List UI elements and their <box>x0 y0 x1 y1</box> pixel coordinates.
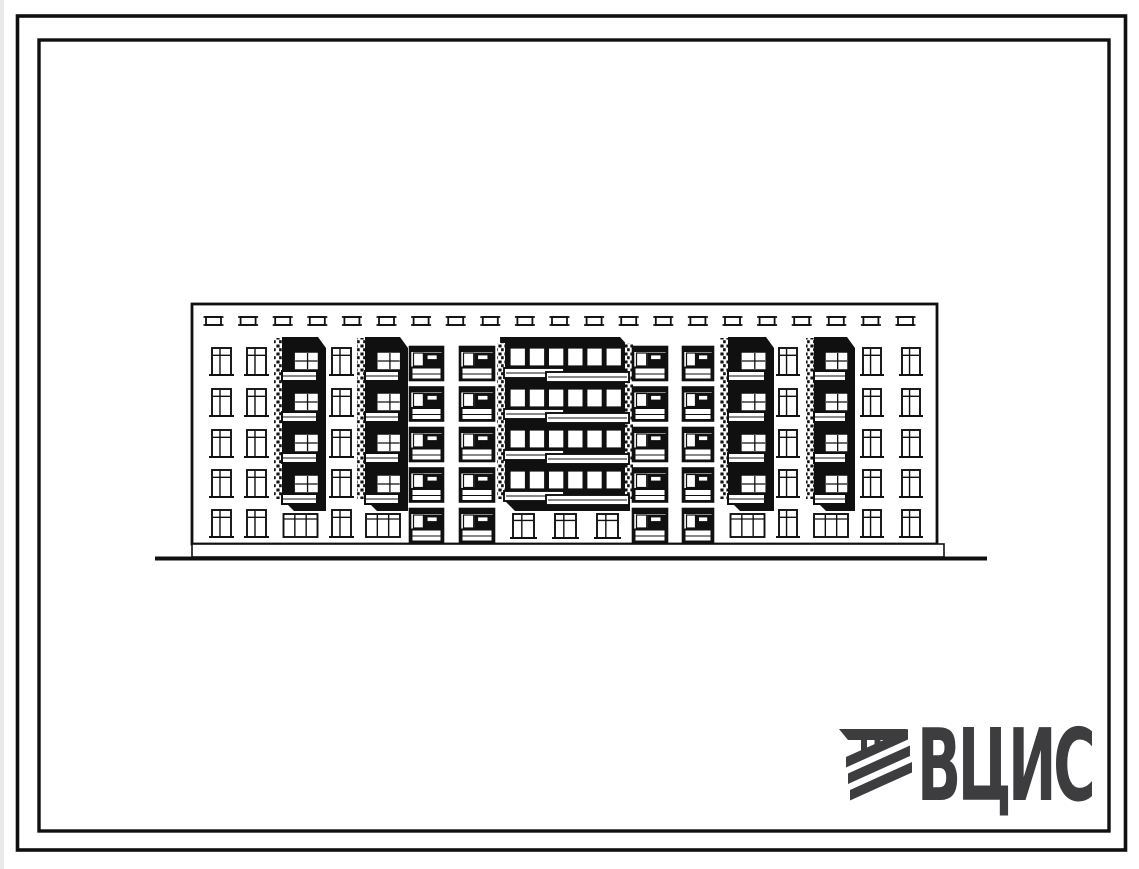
balcony-window <box>427 355 437 360</box>
drawing-canvas: ВЦИС <box>0 0 1139 869</box>
window <box>212 470 231 497</box>
balcony-door <box>464 475 474 488</box>
parapet-vent <box>587 317 602 325</box>
balcony-window <box>427 477 437 482</box>
window <box>555 514 576 538</box>
parapet-vent <box>414 317 429 325</box>
window <box>863 348 881 375</box>
window <box>779 470 797 497</box>
loggia-window <box>510 389 526 407</box>
window <box>902 430 920 457</box>
balcony-window <box>427 436 437 441</box>
balcony-lintel <box>460 469 494 474</box>
loggia-window <box>568 389 584 407</box>
balcony-lintel <box>683 469 713 474</box>
window <box>247 430 266 457</box>
balcony-door <box>687 515 696 528</box>
balcony-door <box>637 515 647 528</box>
window <box>332 430 351 457</box>
loggia-window <box>606 430 622 448</box>
speckle-texture <box>497 343 505 499</box>
balcony-window <box>651 477 661 482</box>
balcony-lintel <box>683 428 713 433</box>
loggia-window <box>606 348 622 366</box>
window <box>779 348 797 375</box>
window <box>863 470 881 497</box>
parapet-vent <box>310 317 325 325</box>
balcony-door <box>464 394 474 407</box>
window <box>247 348 266 375</box>
balcony-lintel <box>633 509 667 514</box>
loggia-window <box>529 430 545 448</box>
balcony-lintel <box>633 428 667 433</box>
balcony-lintel <box>410 428 443 433</box>
loggia-window <box>587 348 603 366</box>
loggia-window <box>529 471 545 489</box>
window <box>779 510 797 537</box>
balcony-lintel <box>683 509 713 514</box>
vcis-logo: ВЦИС <box>839 708 1092 824</box>
window <box>902 510 920 537</box>
balcony-door <box>464 434 474 447</box>
balcony-lintel <box>460 428 494 433</box>
window <box>863 510 881 537</box>
balcony-door <box>464 515 474 528</box>
balcony-lintel <box>410 469 443 474</box>
speckle-texture <box>720 338 728 499</box>
loggia-window <box>568 430 584 448</box>
balcony-window <box>478 396 488 401</box>
balcony-window <box>478 355 488 360</box>
window <box>247 510 266 537</box>
plinth <box>192 544 944 557</box>
balcony-door <box>414 434 424 447</box>
window <box>212 430 231 457</box>
window-triple <box>731 514 765 537</box>
parapet-vent <box>656 317 671 325</box>
balcony-door <box>637 434 647 447</box>
balcony-door <box>637 475 647 488</box>
parapet-vent <box>760 317 775 325</box>
building-elevation-drawing <box>155 304 987 559</box>
loggia-window <box>606 471 622 489</box>
balcony-door <box>687 434 696 447</box>
scanned-blueprint-page: ВЦИС <box>0 0 1139 869</box>
window-triple <box>284 514 318 537</box>
balcony-door <box>687 394 696 407</box>
window <box>597 514 618 538</box>
window <box>902 389 920 416</box>
window <box>332 348 351 375</box>
loggia-window <box>606 389 622 407</box>
balcony-window <box>427 517 437 522</box>
parapet-vent <box>552 317 567 325</box>
loggia-window <box>587 471 603 489</box>
balcony-lintel <box>683 347 713 352</box>
loggia-window <box>510 471 526 489</box>
balcony-door <box>637 353 647 366</box>
balcony-window <box>651 355 661 360</box>
window <box>212 510 231 537</box>
parapet-vent <box>829 317 844 325</box>
balcony-window <box>651 396 661 401</box>
balcony-window <box>478 477 488 482</box>
speckle-texture <box>806 338 814 499</box>
balcony-window <box>478 517 488 522</box>
balcony-window <box>651 517 661 522</box>
window-triple <box>814 514 848 537</box>
parapet-vent <box>690 317 705 325</box>
balcony-door <box>414 515 424 528</box>
parapet-vent <box>275 317 290 325</box>
balcony-lintel <box>633 469 667 474</box>
window <box>212 348 231 375</box>
window <box>247 389 266 416</box>
balcony-lintel <box>633 388 667 393</box>
window <box>902 470 920 497</box>
balcony-window <box>651 436 661 441</box>
balcony-window <box>427 396 437 401</box>
balcony-window <box>699 355 708 360</box>
scan-edge-artifact <box>0 0 4 869</box>
balcony-lintel <box>683 388 713 393</box>
loggia-window <box>529 348 545 366</box>
window <box>863 430 881 457</box>
window <box>779 430 797 457</box>
parapet-vent <box>863 317 878 325</box>
parapet-vent <box>898 317 913 325</box>
balcony-window <box>699 436 708 441</box>
balcony-lintel <box>460 347 494 352</box>
balcony-lintel <box>410 347 443 352</box>
parapet-vent <box>725 317 740 325</box>
speckle-texture <box>274 338 282 499</box>
parapet-vent <box>794 317 809 325</box>
balcony-door <box>414 353 424 366</box>
parapet-vent <box>483 317 498 325</box>
window <box>863 389 881 416</box>
window-triple <box>366 514 400 537</box>
balcony-lintel <box>410 509 443 514</box>
window <box>902 348 920 375</box>
balcony-door <box>414 475 424 488</box>
loggia-window <box>587 430 603 448</box>
balcony-lintel <box>460 509 494 514</box>
loggia-window <box>548 348 564 366</box>
vcis-logo-text: ВЦИС <box>917 708 1092 824</box>
loggia-window <box>587 389 603 407</box>
window <box>332 510 351 537</box>
window <box>513 514 534 538</box>
loggia-window <box>510 348 526 366</box>
loggia-window <box>510 430 526 448</box>
parapet-vent <box>379 317 394 325</box>
parapet-vent <box>621 317 636 325</box>
balcony-door <box>464 353 474 366</box>
loggia-window <box>568 348 584 366</box>
loggia-window <box>548 430 564 448</box>
parapet-vent <box>241 317 256 325</box>
balcony-door <box>414 394 424 407</box>
loggia-window <box>529 389 545 407</box>
window <box>212 389 231 416</box>
balcony-window <box>478 436 488 441</box>
balcony-window <box>699 477 708 482</box>
loggia-window <box>568 471 584 489</box>
balcony-lintel <box>633 347 667 352</box>
window <box>332 470 351 497</box>
speckle-texture <box>357 338 365 499</box>
parapet-vent <box>517 317 532 325</box>
balcony-window <box>699 517 708 522</box>
vcis-emblem-icon <box>839 729 912 801</box>
window <box>779 389 797 416</box>
loggia-window <box>548 471 564 489</box>
balcony-window <box>699 396 708 401</box>
balcony-door <box>687 475 696 488</box>
balcony-lintel <box>410 388 443 393</box>
window <box>247 470 266 497</box>
balcony-lintel <box>460 388 494 393</box>
balcony-door <box>637 394 647 407</box>
balcony-door <box>687 353 696 366</box>
parapet-vent <box>448 317 463 325</box>
window <box>332 389 351 416</box>
loggia-window <box>548 389 564 407</box>
parapet-vent <box>344 317 359 325</box>
parapet-vent <box>206 317 221 325</box>
